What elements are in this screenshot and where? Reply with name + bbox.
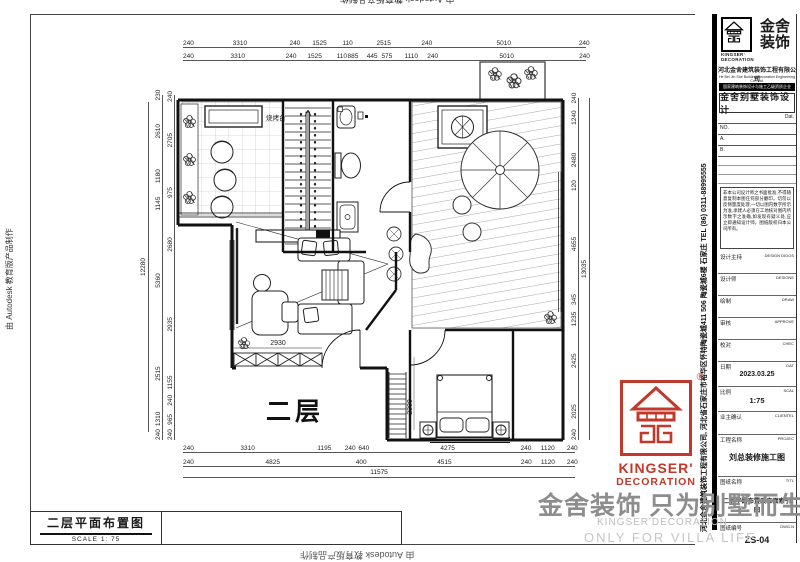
dim-col-left-inner: 2402705975268029351155240965240	[164, 95, 175, 440]
dim-value: 1195	[304, 446, 345, 453]
autodesk-note-bottom: 由 Autodesk 教育版产品制作	[300, 549, 415, 562]
field-check: 校对CHEC	[718, 340, 796, 362]
field-scale: 比例SCAL 1:75	[718, 387, 796, 412]
dim-value: 575	[379, 54, 396, 61]
dim-value: 5010	[434, 54, 579, 61]
dim-row-bottom-2: 240482540045152401120240	[183, 456, 575, 467]
bedroom	[420, 375, 509, 438]
scale-value: 1:75	[720, 396, 794, 405]
bbq-table	[205, 106, 262, 127]
dim-value: 1145	[156, 190, 163, 217]
kingser-stamp: ® KINGSER' DECORATION	[600, 372, 712, 488]
field-label-en: APPROVE	[775, 319, 794, 324]
kingser-logo-icon	[723, 19, 745, 45]
shower-tray	[337, 202, 358, 232]
drawing-sheet: { "sheet": { "edge_note_left": "由 Autode…	[0, 0, 800, 559]
dim-value: 445	[366, 54, 379, 61]
dim-2930: 2930	[270, 340, 286, 347]
field-date: 日期DAT 2023.03.25	[718, 362, 796, 387]
company-name-en: He Bei Jin She Building Decoration Engin…	[718, 75, 796, 83]
dim-total-left: 12280	[140, 102, 149, 432]
dim-value: 5360	[156, 217, 163, 344]
toilet-icon	[335, 153, 361, 178]
kingser-logo-box	[721, 17, 752, 52]
bbq-label: 烧烤台	[266, 113, 286, 122]
dim-value: 240	[521, 460, 529, 467]
terrace-chair	[453, 196, 471, 214]
floor-label: 二层	[266, 398, 324, 426]
footer-empty-cell	[162, 512, 401, 544]
door-arc	[380, 182, 410, 212]
field-label: 工程名称	[720, 436, 742, 444]
a-row: A.	[718, 135, 796, 146]
dim-value: 4515	[368, 460, 521, 467]
field-label: 设计师	[720, 275, 737, 283]
dim-value: 885	[340, 54, 366, 61]
autodesk-note-top: 由 Autodesk 教育版产品制作	[340, 0, 455, 6]
dim-value: 3310	[190, 54, 286, 61]
titleblock: KINGSER' DECORATION 金舍 装饰 河北金舍建筑装饰工程有限公司…	[718, 14, 797, 543]
dim-value: 240	[345, 446, 353, 453]
dim-value: 1180	[156, 162, 163, 190]
dim-value: 240	[427, 54, 434, 61]
bed	[437, 375, 492, 437]
field-design-director: 设计主持DESIGN DIOOS	[718, 252, 796, 274]
field-label-en: DWG.N	[780, 524, 794, 529]
dim-total-bottom: 11575	[183, 469, 575, 478]
dim-value: 1120	[529, 460, 567, 467]
sheet-border-top	[30, 14, 695, 15]
dim-value: 5010	[429, 41, 579, 48]
dim-value: 230	[156, 95, 163, 100]
field-label-en: DESIGNE	[776, 275, 794, 280]
dim-value: 240	[168, 95, 175, 102]
dim-value: 3310	[190, 41, 289, 48]
planter-box	[480, 62, 545, 100]
field-designer: 设计师DESIGNE	[718, 274, 796, 296]
dim-row-top-2: 2403310240152511088544557511102405010240	[183, 50, 586, 61]
dim-value: 965	[168, 406, 175, 433]
field-approve: 审核APPROVE	[718, 318, 796, 340]
copyright-notes: 非本公司设计师之书面批准,不得随意复制本图任何部分翻印。切勿以反侧量度处理,一切…	[720, 187, 794, 249]
dim-value: 4825	[191, 460, 354, 467]
dim-value: 240	[168, 433, 175, 440]
dim-value: 1110	[395, 54, 427, 61]
balcony-chairs	[211, 141, 236, 218]
field-label: 校对	[720, 341, 731, 349]
blank-rule	[718, 175, 796, 184]
field-label: 日期	[720, 363, 731, 371]
lower-stair	[389, 372, 406, 438]
dim-value: 240	[286, 54, 293, 61]
field-label: 绘制	[720, 297, 731, 305]
watermark-en-2: ONLY FOR VILLA LIFE	[584, 530, 757, 545]
kingser-logo-icon	[626, 383, 686, 447]
dim-value: 2515	[346, 41, 421, 48]
titleblock-logo-row: KINGSER' DECORATION 金舍 装饰	[718, 14, 796, 65]
stamp-logo-box	[620, 380, 692, 456]
dept-title: 金舍别墅装饰设计	[719, 93, 795, 113]
dim-value: 3310	[191, 446, 304, 453]
dim-value: 1235	[572, 305, 579, 333]
dim-value: 2025	[572, 388, 579, 434]
dim-value: 2515	[156, 344, 163, 403]
dim-value: 1155	[168, 366, 175, 399]
dim-value: 400	[354, 460, 368, 467]
dim-row-bottom-1: 2403310119524064042752401120240	[183, 442, 575, 453]
dim-value: 640	[353, 446, 375, 453]
footer-rule	[40, 533, 152, 535]
dim-total-right: 13035	[581, 98, 590, 440]
field-label-en: DAT	[786, 363, 794, 368]
terrace-chair	[463, 223, 481, 241]
dim-value: 240	[289, 41, 296, 48]
dim-value: 240	[183, 41, 190, 48]
dim-row-top-1: 2403310240152511025152405010240	[183, 37, 586, 48]
footer-title-cell: 二层平面布置图 SCALE 1: 75	[31, 512, 162, 544]
field-label-en: CLIENTEL	[775, 413, 794, 418]
field-label: 审核	[720, 319, 731, 327]
field-label: 设计主持	[720, 253, 742, 261]
dim-value: 1525	[293, 54, 337, 61]
dim-value: 240	[567, 460, 575, 467]
company-name: 河北金舍建筑装饰工程有限公司	[718, 65, 796, 75]
titleblock-divider-bar	[712, 14, 717, 530]
plant-icon	[238, 337, 249, 348]
dim-value: 1240	[572, 103, 579, 131]
desk-and-chair	[252, 275, 298, 336]
dim-value: 1310	[156, 403, 163, 434]
watermark-en-1: KINGSER'DECORATION	[597, 517, 728, 528]
dim-value: 2680	[168, 206, 175, 282]
dim-value: 240	[579, 54, 586, 61]
dim-value: 240	[168, 399, 175, 406]
field-draw: 绘制DRAW	[718, 296, 796, 318]
dim-value: 2480	[572, 132, 579, 189]
dim-value: 2705	[168, 102, 175, 179]
staircase	[285, 108, 331, 244]
floor-plan: 2930 2300 烧烤台 二层	[148, 52, 608, 454]
field-label-en: PROJEC	[778, 436, 794, 441]
dim-value: 975	[168, 179, 175, 207]
field-label-en: TITL	[786, 478, 794, 483]
blank-rule	[718, 157, 796, 166]
tap-icon	[338, 107, 343, 112]
registered-mark-icon: ®	[697, 372, 704, 383]
logo-cn: 金舍 装饰	[754, 17, 796, 65]
dim-value: 240	[579, 41, 586, 48]
dim-value: 240	[183, 446, 191, 453]
dim-value: 345	[572, 297, 579, 305]
footer-title-box: 二层平面布置图 SCALE 1: 75	[30, 511, 402, 545]
living-room	[236, 222, 388, 335]
dim-value: 240	[156, 434, 163, 440]
logo-en-2: DECORATION	[721, 57, 754, 62]
date-value: 2023.03.25	[720, 371, 794, 378]
drawing-title: 二层平面布置图	[47, 514, 145, 531]
dim-value: 240	[421, 41, 428, 48]
field-label: 比例	[720, 388, 731, 396]
bathroom	[335, 106, 368, 232]
autodesk-note-left: 由 Autodesk 教育版产品制作	[4, 228, 15, 330]
no-row: NO.	[718, 124, 796, 135]
field-label-en: SCAL	[784, 388, 794, 393]
dim-value: 4275	[375, 446, 521, 453]
dim-col-left-outer: 230261011801145536025151310240	[152, 95, 163, 440]
dim-value: 240	[520, 446, 528, 453]
field-label: 图纸名称	[720, 478, 742, 486]
dim-value: 2610	[156, 100, 163, 162]
kidney-table	[410, 234, 432, 273]
field-label-en: CHEC	[783, 341, 794, 346]
dim-value: 240	[567, 446, 575, 453]
field-project-name: 工程名称PROJEC 刘总装修施工图	[718, 435, 796, 477]
field-client-confirm: 业主确认CLIENTEL	[718, 412, 796, 435]
dim-value: 2425	[572, 333, 579, 388]
dim-value: 120	[572, 188, 579, 191]
dim-value: 2935	[168, 283, 175, 366]
door-arc	[322, 330, 360, 368]
field-label-en: DESIGN DIOOS	[765, 253, 794, 258]
blank-rule	[718, 166, 796, 175]
door-arc	[410, 330, 445, 365]
field-label: 业主确认	[720, 413, 742, 421]
dim-col-right-inner: 240124024801204655345123524252025240	[568, 98, 579, 440]
dim-value: 240	[183, 54, 190, 61]
drawing-scale: SCALE 1: 75	[72, 536, 121, 543]
dim-value: 240	[572, 435, 579, 440]
field-label-en: DRAW	[782, 297, 794, 302]
dim-value: 4655	[572, 191, 579, 297]
dim-value: 240	[183, 460, 191, 467]
dim-value: 240	[572, 98, 579, 103]
svg-text:2300: 2300	[407, 399, 414, 415]
b-row: B.	[718, 146, 796, 157]
project-name-value: 刘总装修施工图	[720, 452, 794, 463]
dim-value: 1120	[529, 446, 567, 453]
stamp-name: KINGSER'	[600, 460, 712, 476]
railing	[234, 348, 322, 366]
dim-value: 1525	[297, 41, 343, 48]
sheet-border-left	[30, 14, 31, 544]
